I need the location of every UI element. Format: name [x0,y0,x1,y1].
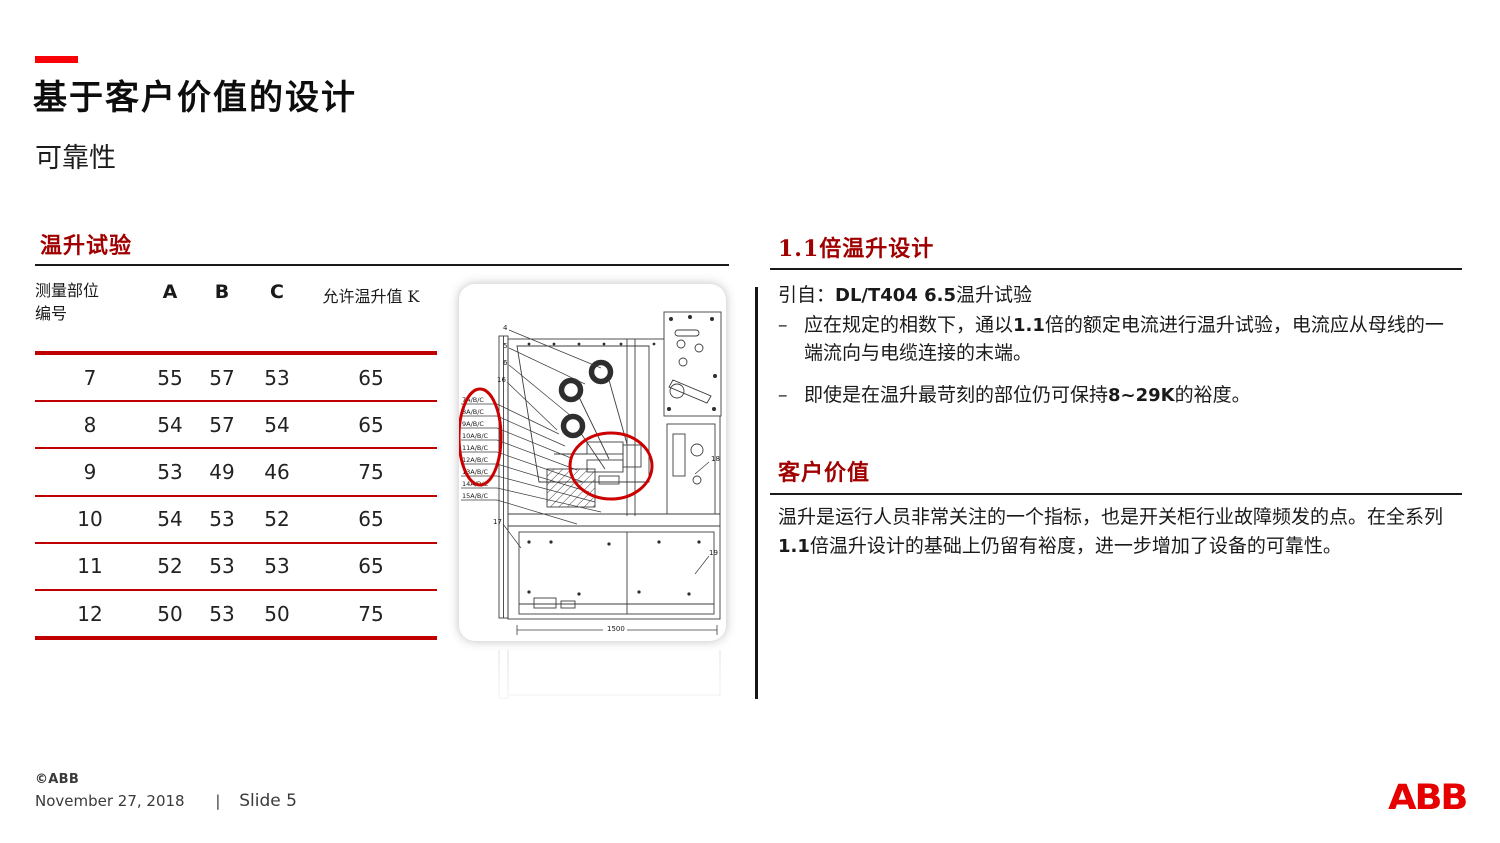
cell-k: 65 [305,366,437,390]
accent-dash [35,56,78,63]
cell-b: 49 [195,460,249,484]
cell-id: 8 [35,413,145,437]
customer-value-paragraph: 温升是运行人员非常关注的一个指标，也是开关柜行业故障频发的点。在全系列1.1倍温… [778,503,1464,562]
callout-number: 4 [503,324,508,332]
header-cell-b: B [195,277,249,325]
footer-slide-number: Slide 5 [239,791,297,811]
cell-a: 54 [145,413,195,437]
section-heading-temp-test: 温升试验 [40,228,132,260]
cell-id: 9 [35,460,145,484]
cell-id: 12 [35,602,145,626]
cell-c: 54 [249,413,305,437]
source-reference: 引自：DL/T404 6.5温升试验 [778,280,1032,307]
value-section-rule [770,493,1462,495]
cell-a: 53 [145,460,195,484]
bullet-text: 即使是在温升最苛刻的部位仍可保持8~29K的裕度。 [804,382,1251,410]
callout-number: 6 [503,359,508,367]
cell-id: 7 [35,366,145,390]
phase-label: 11A/B/C [462,444,489,452]
abb-logo: ABB [1388,778,1466,818]
dash-bullet-icon: – [778,382,804,410]
design-bullets: – 应在规定的相数下，通以1.1倍的额定电流进行温升试验，电流应从母线的一端流向… [778,312,1462,425]
dimension-label: 1500 [607,625,625,633]
cell-b: 57 [195,413,249,437]
section-heading-customer-value: 客户价值 [778,455,870,487]
header-cell-c: C [249,277,305,325]
footer-date: November 27, 2018 [35,792,185,810]
table-header-row: 测量部位 编号 A B C 允许温升值 K [35,277,437,325]
table-row: 12 50 53 50 75 [35,591,437,640]
dash-bullet-icon: – [778,312,804,367]
cell-id: 10 [35,507,145,531]
reflection-fade [459,650,726,750]
table-row: 10 54 53 52 65 [35,497,437,544]
callout-number: 17 [493,518,502,526]
bullet-text: 应在规定的相数下，通以1.1倍的额定电流进行温升试验，电流应从母线的一端流向与电… [804,312,1462,367]
cell-a: 50 [145,602,195,626]
cell-b: 53 [195,554,249,578]
slide: 基于客户价值的设计 可靠性 温升试验 测量部位 编号 A B C 允许温升值 K… [0,0,1500,843]
cell-id: 11 [35,554,145,578]
phase-label: 10A/B/C [462,432,489,440]
switchgear-drawing: 7A/B/C 8A/B/C 9A/B/C 10A/B/C 11A/B/C 12A… [459,284,726,641]
footer-meta: November 27, 2018 | Slide 5 [35,791,297,811]
cell-c: 53 [249,366,305,390]
phase-label: 12A/B/C [462,456,489,464]
cell-k: 75 [305,602,437,626]
cell-c: 52 [249,507,305,531]
phase-label: 8A/B/C [462,408,484,416]
technical-drawing: 7A/B/C 8A/B/C 9A/B/C 10A/B/C 11A/B/C 12A… [459,284,726,641]
cell-k: 75 [305,460,437,484]
page-subtitle: 可靠性 [35,136,116,175]
callout-number: 5 [503,342,507,350]
cell-a: 52 [145,554,195,578]
cell-c: 53 [249,554,305,578]
temp-rise-table: 7 55 57 53 65 8 54 57 54 65 9 53 49 46 7… [35,355,437,640]
mechanism-panel [664,312,721,416]
cell-k: 65 [305,554,437,578]
phase-label: 9A/B/C [462,420,484,428]
footer-copyright: ©ABB [35,772,79,787]
phase-label: 15A/B/C [462,492,489,500]
cell-k: 65 [305,507,437,531]
callout-number: 19 [709,549,718,557]
cell-b: 53 [195,602,249,626]
footer-separator: | [215,792,220,810]
table-row: 8 54 57 54 65 [35,402,437,449]
cell-b: 57 [195,366,249,390]
table-row: 11 52 53 53 65 [35,544,437,591]
table-row: 7 55 57 53 65 [35,355,437,402]
callout-number: 18 [711,455,720,463]
bullet-item: – 应在规定的相数下，通以1.1倍的额定电流进行温升试验，电流应从母线的一端流向… [778,312,1462,367]
bushing-rings [562,363,611,436]
table-row: 9 53 49 46 75 [35,449,437,496]
left-section-rule [35,264,729,266]
callout-number: 16 [497,376,506,384]
cell-c: 50 [249,602,305,626]
cell-k: 65 [305,413,437,437]
bullet-item: – 即使是在温升最苛刻的部位仍可保持8~29K的裕度。 [778,382,1462,410]
header-cell-part: 测量部位 编号 [35,277,145,325]
cell-b: 53 [195,507,249,531]
page-title: 基于客户价值的设计 [33,70,357,119]
annotation-ellipse-contacts [570,433,652,499]
column-divider [755,287,758,699]
section-heading-design: 1.1倍温升设计 [778,231,934,263]
design-section-rule [770,268,1462,270]
cell-a: 55 [145,366,195,390]
cell-a: 54 [145,507,195,531]
header-cell-a: A [145,277,195,325]
header-cell-allowed: 允许温升值 K [305,277,437,325]
cell-c: 46 [249,460,305,484]
